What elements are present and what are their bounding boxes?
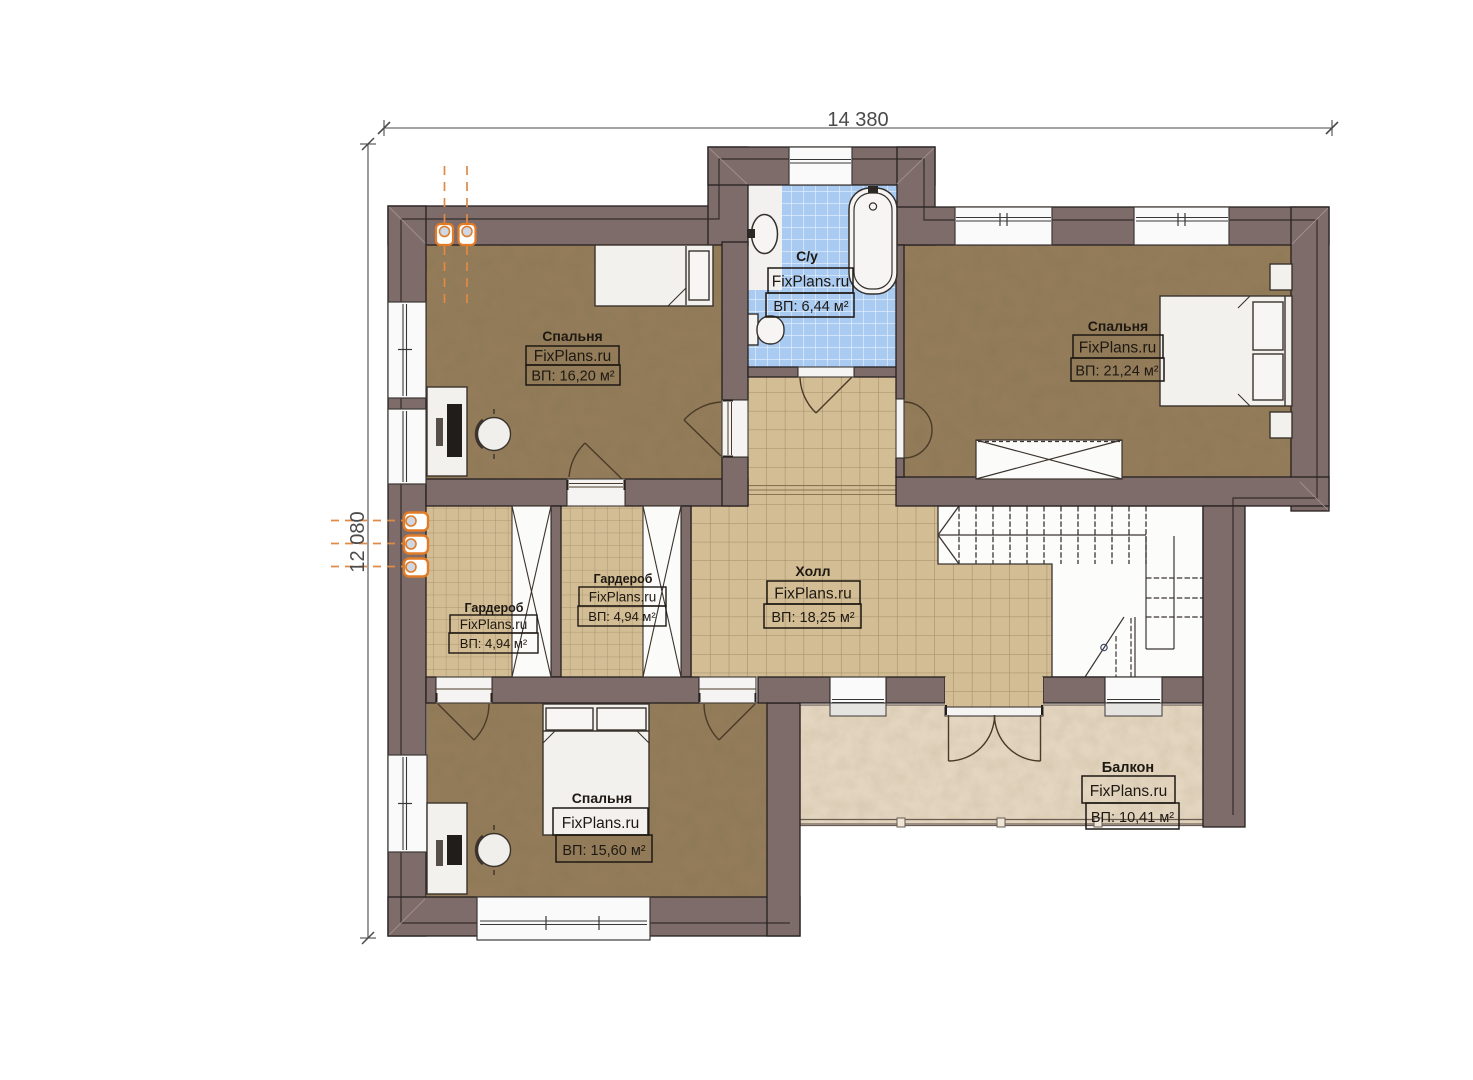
svg-text:FixPlans.ru: FixPlans.ru bbox=[534, 348, 612, 365]
svg-text:FixPlans.ru: FixPlans.ru bbox=[1090, 783, 1168, 800]
svg-text:ВП: 18,25 м²: ВП: 18,25 м² bbox=[771, 610, 854, 626]
svg-text:14 380: 14 380 bbox=[827, 109, 888, 131]
svg-text:Гардероб: Гардероб bbox=[464, 601, 523, 615]
svg-text:ВП: 15,60 м²: ВП: 15,60 м² bbox=[562, 843, 645, 859]
svg-text:12 080: 12 080 bbox=[347, 511, 369, 572]
svg-text:FixPlans.ru: FixPlans.ru bbox=[589, 590, 657, 605]
svg-text:Гардероб: Гардероб bbox=[593, 572, 652, 586]
svg-text:Спальня: Спальня bbox=[572, 790, 632, 806]
svg-text:С/у: С/у bbox=[796, 248, 818, 264]
svg-text:ВП: 6,44 м²: ВП: 6,44 м² bbox=[773, 299, 848, 315]
svg-text:ВП: 16,20 м²: ВП: 16,20 м² bbox=[531, 369, 614, 385]
svg-text:FixPlans.ru: FixPlans.ru bbox=[1079, 340, 1157, 357]
svg-text:FixPlans.ru: FixPlans.ru bbox=[774, 586, 852, 603]
svg-text:FixPlans.ru: FixPlans.ru bbox=[460, 617, 528, 632]
svg-text:Балкон: Балкон bbox=[1102, 760, 1154, 776]
svg-text:FixPlans.ru: FixPlans.ru bbox=[562, 815, 640, 832]
svg-text:ВП: 10,41 м²: ВП: 10,41 м² bbox=[1091, 810, 1174, 826]
svg-text:FixPlans.ru: FixPlans.ru bbox=[772, 274, 850, 291]
svg-text:ВП: 4,94 м²: ВП: 4,94 м² bbox=[460, 636, 528, 651]
svg-text:Спальня: Спальня bbox=[1088, 318, 1148, 334]
svg-text:ВП: 21,24 м²: ВП: 21,24 м² bbox=[1075, 364, 1158, 380]
svg-text:Спальня: Спальня bbox=[542, 328, 602, 344]
svg-text:Холл: Холл bbox=[795, 563, 830, 579]
svg-text:ВП: 4,94 м²: ВП: 4,94 м² bbox=[588, 609, 656, 624]
